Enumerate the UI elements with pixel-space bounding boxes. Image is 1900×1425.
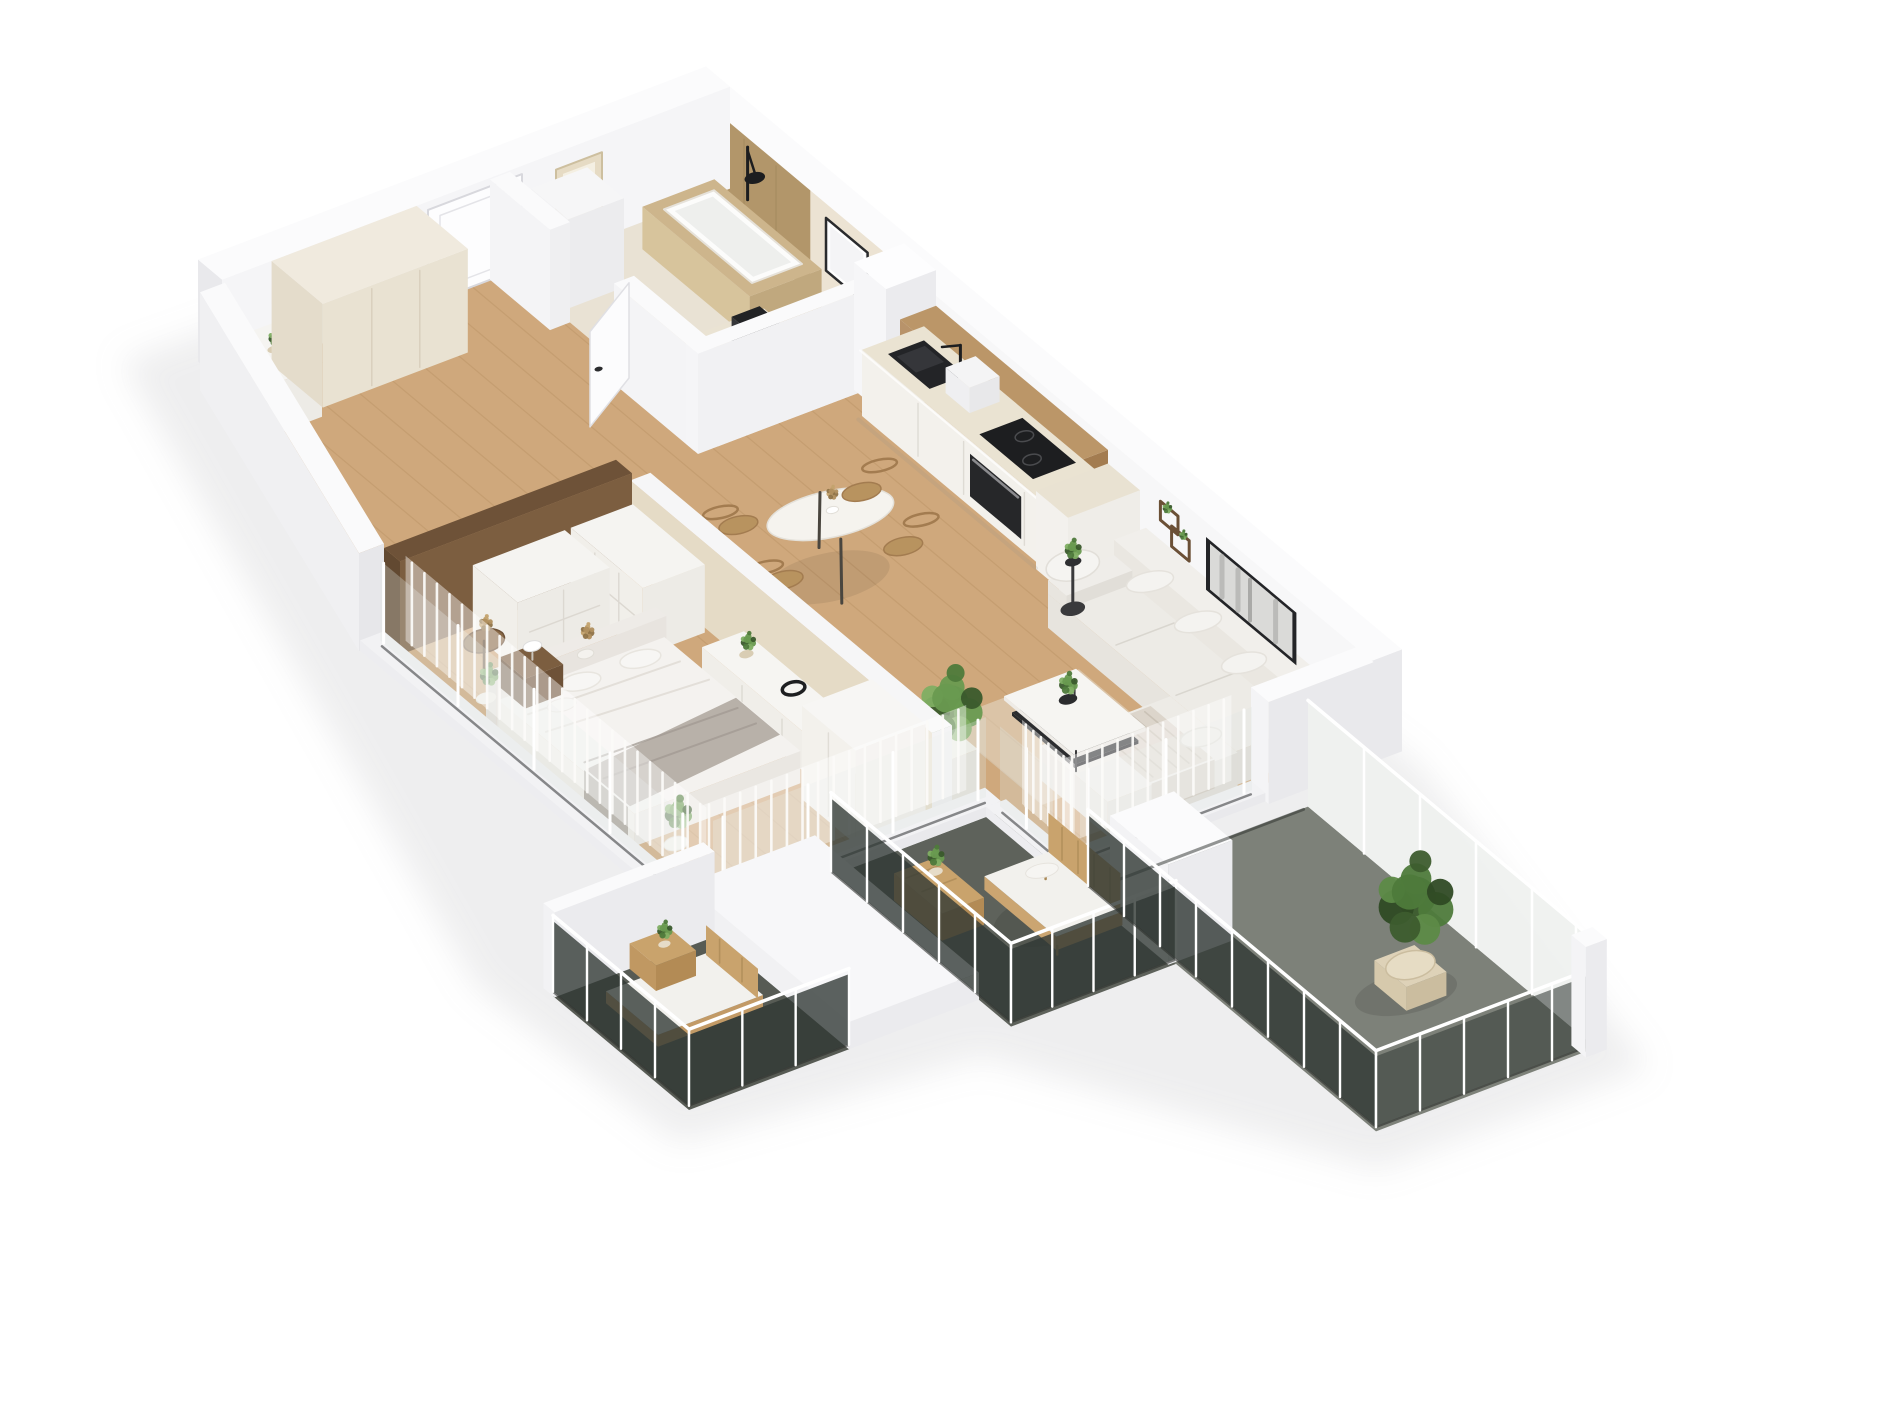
floorplan-render <box>0 0 1900 1425</box>
floorplan-svg <box>0 0 1900 1425</box>
kitchen-faucet-arm <box>942 345 960 347</box>
dining-table-leg <box>819 493 820 548</box>
dining-table-leg <box>841 539 842 603</box>
terrace-corner-pillar <box>1571 927 1606 1058</box>
